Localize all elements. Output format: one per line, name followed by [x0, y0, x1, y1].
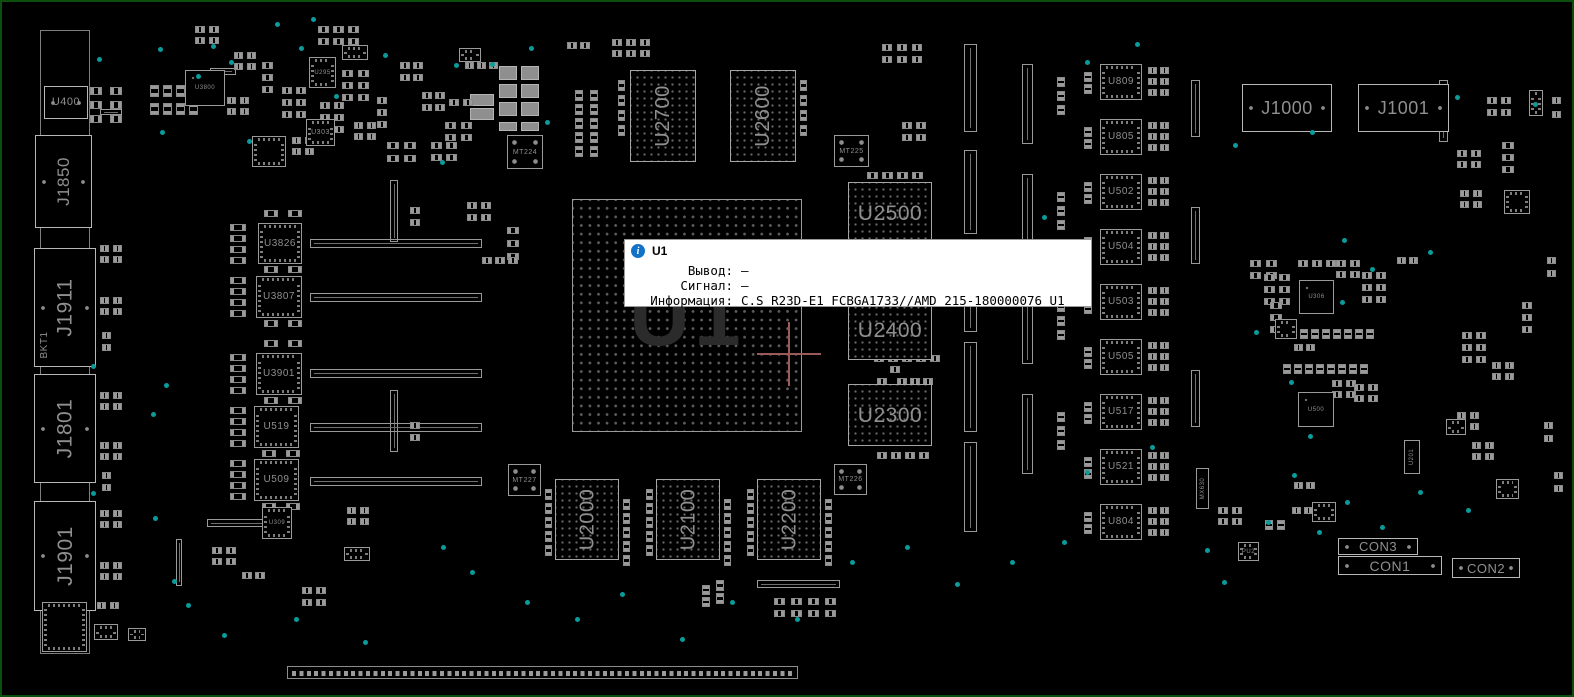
test-point[interactable]: [275, 22, 280, 27]
passive-component: [226, 547, 236, 554]
test-point[interactable]: [334, 94, 339, 99]
component-u2000[interactable]: U2000: [555, 479, 619, 560]
passive-component: [1264, 286, 1275, 293]
test-point[interactable]: [229, 60, 234, 65]
passive-component: [110, 602, 119, 609]
component[interactable]: [1504, 190, 1530, 214]
passive-component: [1218, 507, 1228, 514]
component-j1801[interactable]: J1801: [34, 374, 96, 483]
test-point[interactable]: [575, 617, 580, 622]
power-pad: [521, 66, 539, 80]
passive-component: [897, 44, 907, 51]
test-point[interactable]: [363, 640, 368, 645]
passive-component: [195, 37, 205, 44]
component-u505[interactable]: U505: [1100, 339, 1142, 375]
component-label: U809: [1101, 65, 1141, 99]
test-point[interactable]: [1254, 330, 1259, 335]
passive-component: [508, 257, 518, 264]
test-point[interactable]: [1085, 60, 1090, 65]
test-point[interactable]: [440, 160, 445, 165]
passive-component: [902, 134, 912, 141]
component-label: U2500: [849, 183, 931, 243]
passive-component: [150, 103, 159, 115]
passive-component: [1218, 518, 1228, 525]
passive-component: [1354, 395, 1364, 402]
passive-component: [1522, 314, 1532, 321]
passive-component: [867, 172, 878, 179]
tooltip-refdes: U1: [652, 244, 667, 258]
passive-component: [360, 507, 369, 514]
passive-component: [640, 50, 650, 57]
passive-component: [545, 545, 552, 556]
passive-component: [897, 56, 907, 63]
connector-strip: [310, 477, 482, 486]
tooltip-row-label: Информация:: [631, 293, 733, 308]
passive-component: [348, 26, 359, 33]
component[interactable]: [1312, 502, 1336, 522]
passive-component: [545, 503, 552, 514]
test-point[interactable]: [620, 592, 625, 597]
passive-component: [1148, 67, 1157, 74]
test-point[interactable]: [795, 617, 800, 622]
passive-component: [1505, 373, 1514, 380]
test-point[interactable]: [294, 617, 299, 622]
component[interactable]: [342, 45, 368, 60]
test-point[interactable]: [730, 600, 735, 605]
passive-component: [800, 95, 807, 106]
passive-component: [1057, 440, 1065, 450]
component-u1[interactable]: U1: [572, 199, 802, 432]
component-label: U2300: [849, 385, 931, 445]
passive-component: [234, 63, 243, 70]
component-u503[interactable]: U503: [1100, 284, 1142, 320]
passive-component: [1148, 463, 1157, 470]
component-j1850[interactable]: J1850: [35, 135, 92, 228]
component-label: U2700: [618, 84, 708, 148]
passive-component: [808, 610, 819, 617]
component-label: U521: [1101, 450, 1141, 484]
component-u504[interactable]: U504: [1100, 229, 1142, 265]
passive-component: [100, 256, 109, 263]
passive-component: [342, 70, 353, 77]
component-u517[interactable]: U517: [1100, 394, 1142, 430]
passive-component: [1250, 272, 1261, 279]
passive-component: [282, 87, 292, 94]
test-point[interactable]: [1150, 445, 1155, 450]
test-point[interactable]: [1085, 470, 1090, 475]
passive-component: [1160, 529, 1169, 536]
component[interactable]: [252, 136, 286, 167]
test-point[interactable]: [1310, 130, 1315, 135]
component-label: U2100: [649, 489, 728, 551]
component-u804[interactable]: U804: [1100, 504, 1142, 540]
passive-component: [481, 214, 491, 221]
passive-component: [90, 87, 102, 95]
passive-component: [240, 108, 249, 115]
test-point[interactable]: [172, 579, 177, 584]
connector-strip: [310, 293, 482, 302]
passive-component: [347, 507, 356, 514]
test-point[interactable]: [1455, 95, 1460, 100]
component[interactable]: [459, 48, 481, 62]
passive-component: [209, 37, 219, 44]
test-point[interactable]: [525, 600, 530, 605]
passive-component: [747, 545, 754, 556]
passive-component: [1462, 332, 1472, 339]
component-u2300[interactable]: U2300: [848, 384, 932, 446]
component-con3[interactable]: CON3: [1338, 538, 1418, 555]
passive-component: [1502, 166, 1514, 173]
test-point[interactable]: [222, 633, 227, 638]
passive-component: [1472, 453, 1481, 460]
passive-component: [110, 115, 122, 123]
passive-component: [1084, 347, 1092, 357]
test-point[interactable]: [153, 516, 158, 521]
component-label: U309: [263, 508, 291, 538]
passive-component: [1547, 270, 1556, 277]
passive-component: [110, 87, 122, 95]
passive-component: [230, 224, 246, 231]
test-point[interactable]: [311, 17, 316, 22]
test-point[interactable]: [160, 130, 165, 135]
test-point[interactable]: [1370, 267, 1375, 272]
component[interactable]: [344, 547, 370, 561]
passive-component: [113, 308, 122, 315]
test-point[interactable]: [1289, 380, 1294, 385]
test-point[interactable]: [905, 545, 910, 550]
passive-component: [1084, 402, 1092, 412]
passive-component: [100, 521, 109, 528]
passive-component: [891, 452, 901, 459]
board-canvas[interactable]: U400J1850J1911J1801J1901BKT1J1000J1001CO…: [2, 2, 1572, 695]
component-u201[interactable]: U201: [1404, 440, 1420, 474]
passive-component: [825, 598, 836, 605]
passive-component: [113, 562, 122, 569]
passive-component: [545, 531, 552, 542]
test-point[interactable]: [247, 139, 252, 144]
component-u303[interactable]: U303: [306, 119, 335, 146]
component-label: U3800: [186, 71, 224, 105]
test-point[interactable]: [1342, 238, 1347, 243]
edge-connector: [287, 666, 798, 679]
test-point[interactable]: [490, 62, 495, 67]
passive-component: [404, 155, 416, 162]
component-u3807[interactable]: U3807: [256, 276, 302, 318]
passive-component: [367, 133, 376, 140]
passive-component: [1084, 194, 1092, 204]
connector-slot: [390, 390, 398, 452]
passive-component: [342, 82, 353, 89]
test-point[interactable]: [1292, 473, 1297, 478]
test-point[interactable]: [383, 53, 388, 58]
passive-component: [264, 266, 278, 273]
component-con2[interactable]: CON2: [1452, 558, 1520, 578]
passive-component: [1547, 257, 1556, 264]
passive-component: [1160, 507, 1169, 514]
component-u295[interactable]: U295: [309, 57, 336, 88]
passive-component: [481, 202, 491, 209]
passive-component: [724, 541, 731, 552]
component-bkt1[interactable]: BKT1: [38, 320, 52, 370]
passive-component: [102, 332, 111, 339]
passive-component: [1084, 182, 1092, 192]
passive-component: [646, 517, 653, 528]
component-u521[interactable]: U521: [1100, 449, 1142, 485]
component[interactable]: [128, 628, 146, 641]
passive-component: [912, 56, 922, 63]
component-label: U805: [1101, 120, 1141, 154]
power-pad: [470, 94, 494, 106]
passive-component: [1148, 133, 1157, 140]
passive-component: [890, 366, 900, 373]
test-point[interactable]: [196, 74, 201, 79]
component-u519[interactable]: U519: [254, 406, 299, 448]
component[interactable]: [94, 624, 118, 640]
passive-component: [482, 257, 492, 264]
component-pu2[interactable]: PU2: [1238, 542, 1259, 561]
component-u3800[interactable]: U3800: [185, 70, 225, 106]
component[interactable]: [1446, 419, 1466, 435]
passive-component: [358, 94, 369, 101]
passive-component: [282, 99, 292, 106]
test-point[interactable]: [91, 491, 96, 496]
test-point[interactable]: [1317, 530, 1322, 535]
component-mt227[interactable]: MT227: [508, 464, 541, 496]
test-point[interactable]: [1135, 42, 1140, 47]
component-u2700[interactable]: U2700: [630, 70, 696, 162]
test-point[interactable]: [529, 46, 534, 51]
test-point[interactable]: [158, 47, 163, 52]
passive-component: [1232, 507, 1242, 514]
component-u400[interactable]: U400: [44, 86, 88, 119]
test-point[interactable]: [1428, 250, 1433, 255]
component[interactable]: [1275, 319, 1297, 339]
component-label: J1000: [1243, 85, 1331, 131]
component-u805[interactable]: U805: [1100, 119, 1142, 155]
passive-component: [435, 104, 445, 111]
passive-component: [195, 26, 205, 33]
test-point[interactable]: [545, 120, 550, 125]
passive-component: [1327, 364, 1335, 374]
component-u2600[interactable]: U2600: [730, 70, 796, 162]
passive-component: [1368, 395, 1378, 402]
component-u500[interactable]: U500: [1298, 392, 1334, 427]
test-point[interactable]: [1266, 520, 1271, 525]
component[interactable]: [42, 602, 87, 652]
passive-component: [230, 440, 246, 447]
passive-component: [1232, 518, 1242, 525]
test-point[interactable]: [299, 46, 304, 51]
passive-component: [1470, 412, 1479, 419]
passive-component: [1160, 122, 1169, 129]
component[interactable]: [1496, 479, 1519, 499]
component-label: U400: [45, 87, 87, 118]
passive-component: [100, 403, 109, 410]
passive-component: [1462, 356, 1472, 363]
passive-component: [230, 257, 246, 264]
passive-component: [234, 52, 243, 59]
passive-component: [387, 142, 399, 149]
test-point[interactable]: [454, 63, 459, 68]
passive-component: [358, 70, 369, 77]
passive-component: [618, 95, 625, 106]
component-label: CON1: [1339, 557, 1441, 574]
passive-component: [334, 126, 344, 133]
passive-component: [1476, 344, 1486, 351]
test-point[interactable]: [1308, 434, 1313, 439]
tooltip-row-value: —: [741, 278, 749, 293]
component-mx630[interactable]: MX630: [1196, 468, 1209, 509]
passive-component: [882, 56, 892, 63]
passive-component: [316, 587, 326, 594]
component-u306[interactable]: U306: [1299, 280, 1334, 314]
test-point[interactable]: [680, 637, 685, 642]
test-point[interactable]: [1042, 215, 1047, 220]
passive-component: [590, 104, 598, 115]
component-label: U3826: [259, 224, 301, 263]
component-u509[interactable]: U509: [254, 459, 299, 501]
test-point[interactable]: [1062, 540, 1067, 545]
passive-component: [1148, 419, 1157, 426]
passive-component: [1057, 105, 1065, 115]
passive-component: [590, 118, 598, 129]
component-j1000[interactable]: J1000: [1242, 84, 1332, 132]
passive-component: [1362, 272, 1372, 279]
passive-component: [113, 521, 122, 528]
passive-component: [1057, 426, 1065, 436]
test-point[interactable]: [1222, 580, 1227, 585]
connector-slot: [964, 150, 977, 234]
passive-component: [113, 442, 122, 449]
component-u2100[interactable]: U2100: [656, 479, 720, 560]
component-mt225[interactable]: MT225: [834, 135, 869, 167]
component-mt226[interactable]: MT226: [834, 464, 867, 495]
test-point[interactable]: [164, 383, 169, 388]
test-point[interactable]: [1533, 102, 1538, 107]
passive-component: [230, 387, 246, 394]
component-info-tooltip: i U1 Вывод: — Сигнал: — Информация: C.S …: [624, 239, 1092, 307]
test-point[interactable]: [955, 582, 960, 587]
test-point[interactable]: [441, 545, 446, 550]
component-u2400[interactable]: U2400: [848, 300, 932, 360]
passive-component: [230, 277, 246, 284]
component-j1901[interactable]: J1901: [34, 501, 96, 611]
passive-component: [646, 503, 653, 514]
passive-component: [575, 104, 583, 115]
passive-component: [1057, 206, 1065, 216]
passive-component: [825, 555, 832, 566]
passive-component: [354, 122, 363, 129]
test-point[interactable]: [97, 57, 102, 62]
passive-component: [1160, 78, 1169, 85]
component-u2500[interactable]: U2500: [848, 182, 932, 244]
passive-component: [1160, 67, 1169, 74]
test-point[interactable]: [1418, 490, 1423, 495]
passive-component: [1505, 362, 1514, 369]
passive-component: [100, 297, 109, 304]
test-point[interactable]: [1233, 143, 1238, 148]
passive-component: [1148, 89, 1157, 96]
test-point[interactable]: [1380, 525, 1385, 530]
test-point[interactable]: [91, 364, 96, 369]
passive-component: [230, 299, 246, 306]
passive-component: [113, 510, 122, 517]
component-label: U1: [573, 200, 801, 431]
passive-component: [316, 599, 326, 606]
component-mt224[interactable]: MT224: [507, 135, 543, 169]
component-u502[interactable]: U502: [1100, 174, 1142, 210]
passive-component: [626, 50, 636, 57]
passive-component: [367, 122, 376, 129]
test-point[interactable]: [186, 603, 191, 608]
passive-component: [262, 62, 273, 69]
component-j1001[interactable]: J1001: [1358, 84, 1449, 132]
passive-component: [1057, 220, 1065, 230]
passive-component: [1148, 364, 1157, 371]
component-u2200[interactable]: U2200: [757, 479, 821, 560]
test-point[interactable]: [211, 44, 216, 49]
passive-component: [882, 172, 893, 179]
passive-component: [1084, 512, 1092, 522]
passive-component: [1544, 435, 1553, 442]
passive-component: [410, 207, 420, 214]
component-u309[interactable]: U309: [262, 507, 292, 539]
passive-component: [288, 397, 302, 404]
passive-component: [747, 489, 754, 500]
passive-component: [410, 422, 420, 429]
passive-component: [302, 599, 312, 606]
passive-component: [404, 142, 416, 149]
passive-component: [1554, 472, 1563, 479]
component-u809[interactable]: U809: [1100, 64, 1142, 100]
test-point[interactable]: [470, 570, 475, 575]
component-label: MT227: [509, 465, 540, 495]
passive-component: [623, 541, 630, 552]
passive-component: [1160, 287, 1169, 294]
passive-component: [1279, 286, 1290, 293]
passive-component: [461, 134, 472, 141]
test-point[interactable]: [850, 560, 855, 565]
passive-component: [262, 450, 276, 457]
passive-component: [1306, 482, 1315, 489]
passive-component: [1487, 97, 1497, 104]
passive-component: [1305, 364, 1313, 374]
test-point[interactable]: [1205, 548, 1210, 553]
passive-component: [230, 429, 246, 436]
passive-component: [230, 365, 246, 372]
component-con1[interactable]: CON1: [1338, 556, 1442, 575]
passive-component: [716, 580, 724, 591]
passive-component: [1362, 284, 1372, 291]
test-point[interactable]: [1466, 508, 1471, 513]
passive-component: [612, 39, 622, 46]
passive-component: [626, 39, 636, 46]
passive-component: [1362, 296, 1372, 303]
component-u3826[interactable]: U3826: [258, 223, 302, 264]
test-point[interactable]: [1345, 500, 1350, 505]
passive-component: [348, 38, 359, 45]
passive-component: [905, 452, 915, 459]
passive-component: [1485, 442, 1494, 449]
test-point[interactable]: [151, 412, 156, 417]
power-pad: [499, 84, 517, 98]
passive-component: [230, 354, 246, 361]
passive-component: [413, 74, 423, 81]
test-point[interactable]: [1010, 560, 1015, 565]
passive-component: [435, 92, 445, 99]
test-point[interactable]: [1340, 300, 1345, 305]
component-u3901[interactable]: U3901: [256, 353, 302, 395]
